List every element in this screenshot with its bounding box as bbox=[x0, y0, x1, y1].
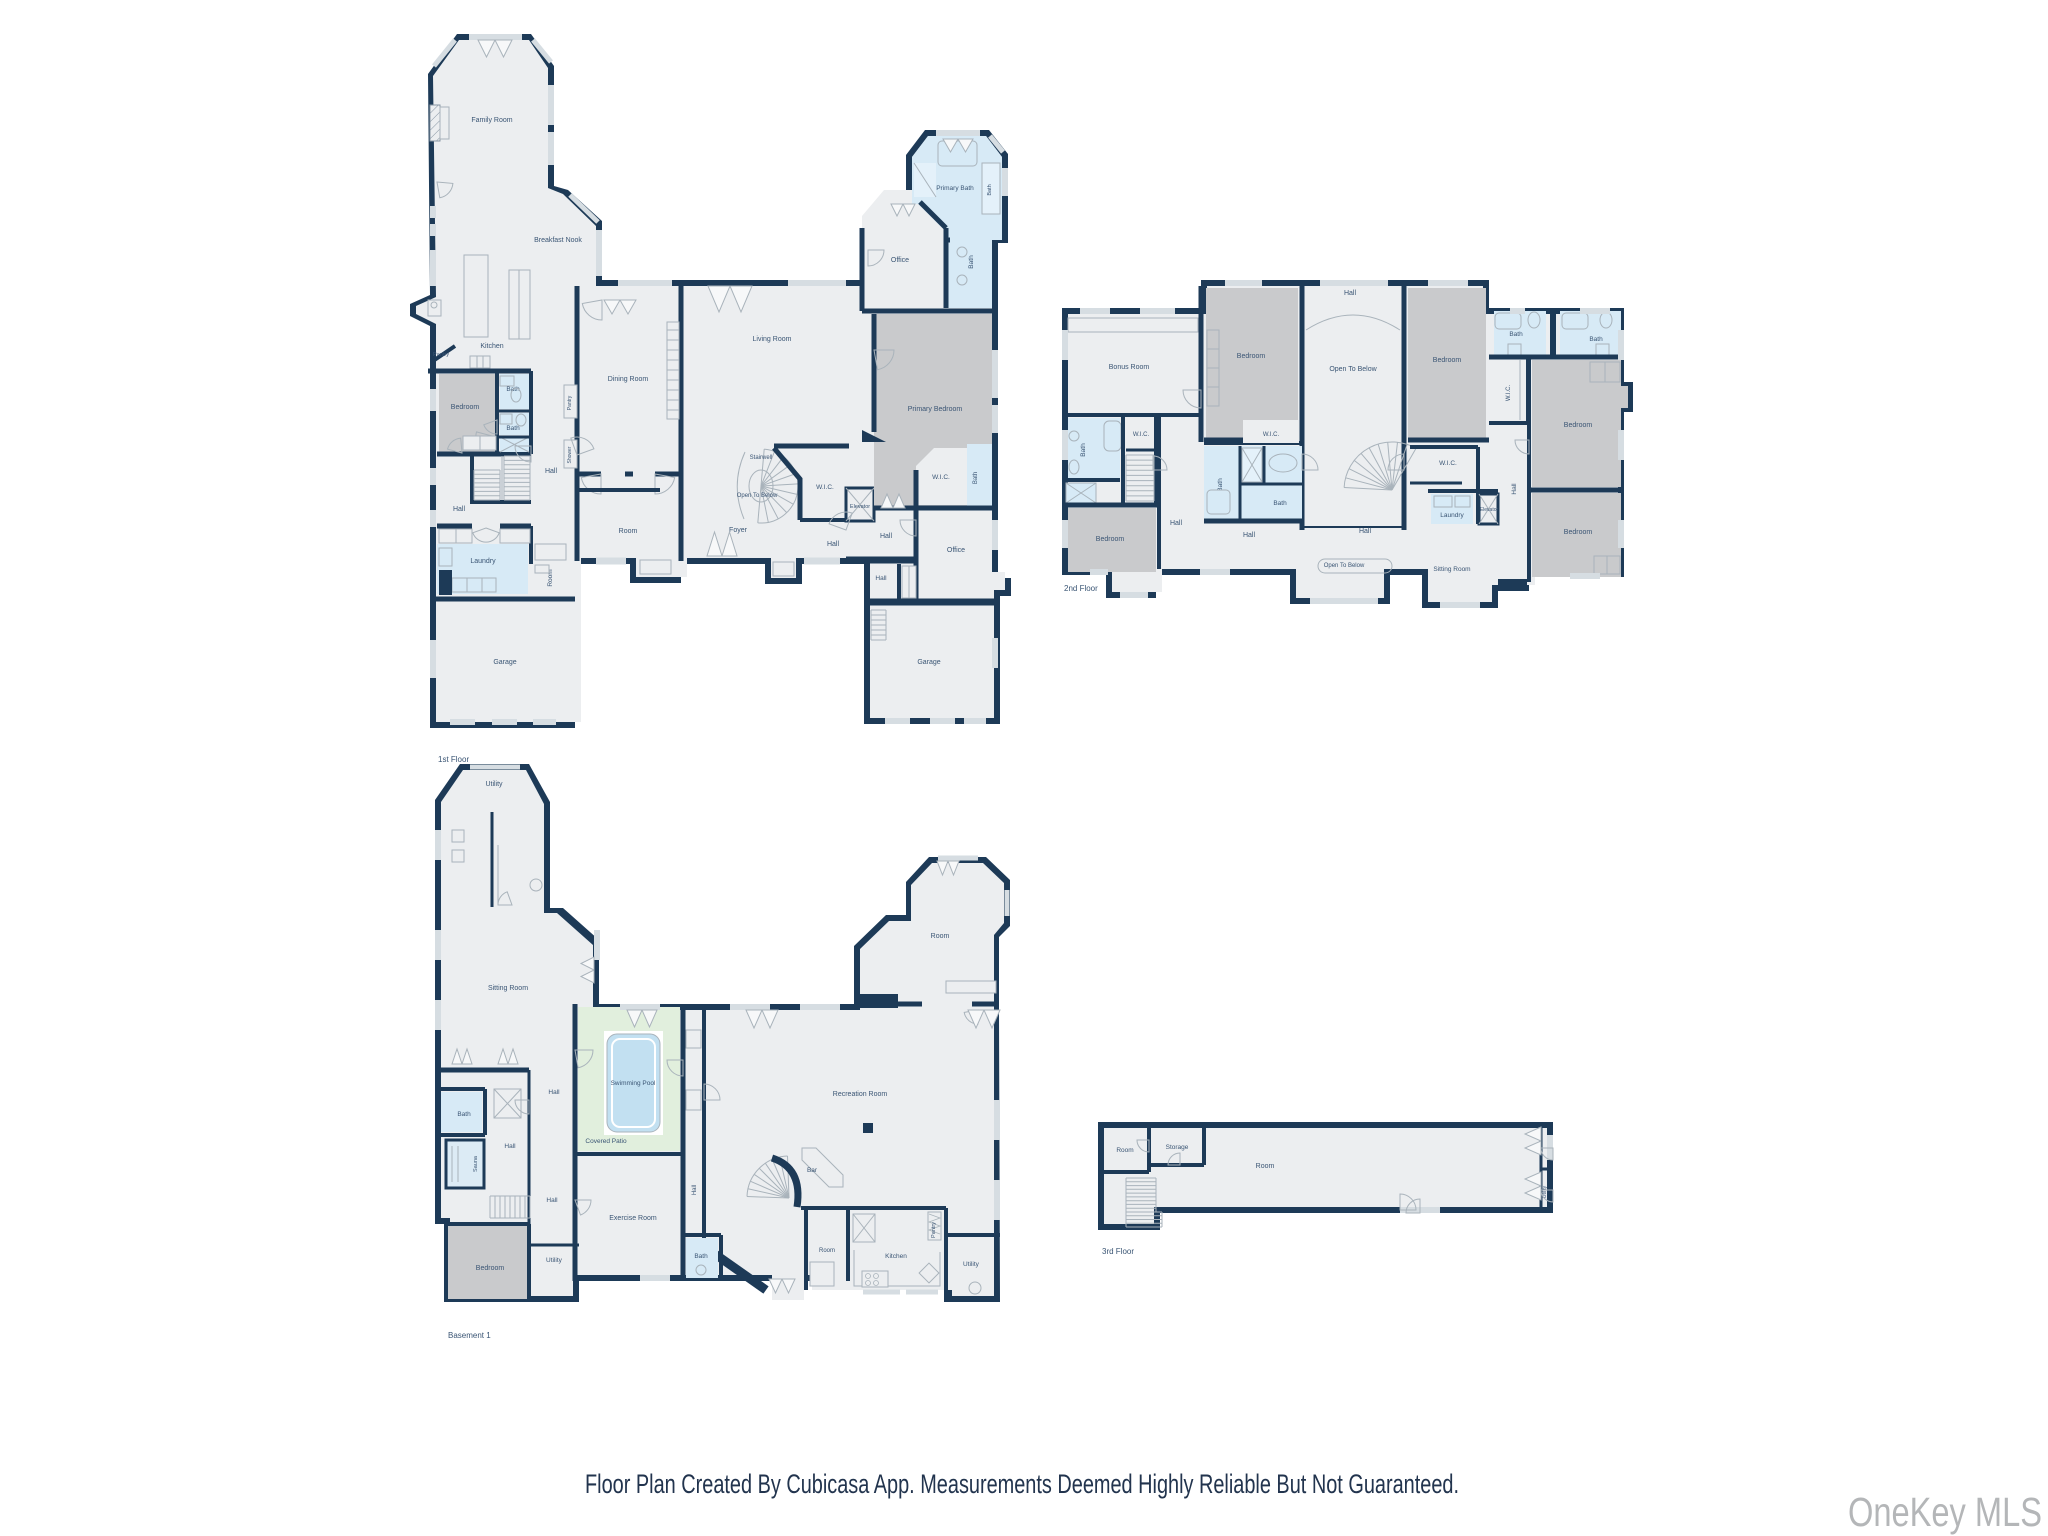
svg-text:W.I.C.: W.I.C. bbox=[1133, 432, 1150, 438]
svg-text:Bath: Bath bbox=[1589, 336, 1603, 343]
svg-text:Sitting Room: Sitting Room bbox=[488, 985, 528, 992]
svg-text:Bath: Bath bbox=[987, 184, 993, 195]
svg-text:W.I.C.: W.I.C. bbox=[1263, 432, 1280, 438]
svg-text:1st Floor: 1st Floor bbox=[438, 755, 469, 764]
svg-text:Bath: Bath bbox=[1509, 331, 1523, 338]
svg-text:Hall: Hall bbox=[875, 575, 887, 582]
svg-text:Hall: Hall bbox=[880, 533, 893, 540]
svg-text:Elevator: Elevator bbox=[1480, 507, 1499, 513]
svg-text:Kitchen: Kitchen bbox=[480, 343, 503, 350]
svg-text:Kitchen: Kitchen bbox=[885, 1253, 907, 1260]
svg-text:Utility: Utility bbox=[963, 1261, 980, 1268]
svg-text:Hall: Hall bbox=[1243, 532, 1256, 539]
svg-text:2nd Floor: 2nd Floor bbox=[1064, 584, 1098, 593]
svg-text:Office: Office bbox=[947, 547, 965, 554]
svg-text:Hall: Hall bbox=[1359, 528, 1372, 535]
svg-text:Bath: Bath bbox=[968, 255, 975, 269]
svg-text:Living Room: Living Room bbox=[753, 336, 792, 343]
svg-text:3rd Floor: 3rd Floor bbox=[1102, 1247, 1134, 1256]
svg-text:Open To Below: Open To Below bbox=[1324, 563, 1365, 569]
svg-text:Stairwell: Stairwell bbox=[750, 455, 773, 461]
svg-text:Hall: Hall bbox=[1344, 290, 1357, 297]
svg-text:Bath: Bath bbox=[1080, 443, 1087, 457]
svg-text:Hall: Hall bbox=[453, 506, 466, 513]
svg-text:Bedroom: Bedroom bbox=[1237, 353, 1266, 360]
svg-text:Elevator: Elevator bbox=[850, 504, 870, 510]
svg-text:Bedroom: Bedroom bbox=[1564, 529, 1593, 536]
svg-text:Bonus Room: Bonus Room bbox=[1109, 364, 1150, 371]
svg-text:Sitting Room: Sitting Room bbox=[1433, 566, 1470, 573]
svg-text:Floor Plan Created By Cubicasa: Floor Plan Created By Cubicasa App. Meas… bbox=[585, 1469, 1459, 1499]
svg-text:W.I.C.: W.I.C. bbox=[1506, 385, 1512, 402]
svg-text:Recreation Room: Recreation Room bbox=[833, 1091, 888, 1098]
svg-text:Swimming Pool: Swimming Pool bbox=[611, 1080, 656, 1087]
svg-text:Bedroom: Bedroom bbox=[1564, 422, 1593, 429]
svg-text:Sauna: Sauna bbox=[473, 1155, 479, 1172]
svg-text:Exercise Room: Exercise Room bbox=[609, 1215, 657, 1222]
svg-text:Room: Room bbox=[931, 933, 950, 940]
svg-text:Shower: Shower bbox=[567, 446, 573, 463]
svg-text:Pantry: Pantry bbox=[433, 352, 449, 358]
svg-text:Family Room: Family Room bbox=[471, 117, 512, 124]
svg-text:Hall: Hall bbox=[546, 1197, 558, 1204]
svg-text:Bedroom: Bedroom bbox=[1433, 357, 1462, 364]
svg-text:Breakfast Nook: Breakfast Nook bbox=[534, 237, 582, 244]
svg-text:Hall: Hall bbox=[504, 1143, 516, 1150]
svg-text:W.I.C.: W.I.C. bbox=[1439, 460, 1457, 467]
svg-text:Room: Room bbox=[1256, 1163, 1275, 1170]
svg-text:Bath: Bath bbox=[506, 425, 520, 432]
svg-text:Hall: Hall bbox=[692, 1185, 698, 1195]
svg-text:OneKey MLS: OneKey MLS bbox=[1848, 1489, 2042, 1535]
svg-text:Room: Room bbox=[819, 1248, 835, 1254]
svg-text:Office: Office bbox=[891, 257, 909, 264]
svg-text:Pantry: Pantry bbox=[567, 395, 573, 410]
svg-text:Hall: Hall bbox=[1170, 520, 1183, 527]
svg-text:Bath: Bath bbox=[694, 1253, 708, 1260]
svg-text:Pantry: Pantry bbox=[931, 1222, 937, 1238]
svg-text:Bedroom: Bedroom bbox=[1096, 536, 1125, 543]
svg-text:Bath: Bath bbox=[1273, 500, 1287, 507]
svg-text:Utility: Utility bbox=[485, 781, 503, 788]
svg-text:Room: Room bbox=[619, 528, 638, 535]
svg-text:Foyer: Foyer bbox=[729, 527, 748, 534]
svg-text:Hall: Hall bbox=[1511, 483, 1518, 495]
svg-text:Laundry: Laundry bbox=[1440, 512, 1464, 519]
svg-text:Covered Patio: Covered Patio bbox=[585, 1138, 627, 1145]
svg-text:Room: Room bbox=[1116, 1147, 1133, 1154]
svg-text:Utility: Utility bbox=[546, 1257, 563, 1264]
svg-text:Primary Bedroom: Primary Bedroom bbox=[908, 406, 963, 413]
svg-text:Hall: Hall bbox=[545, 468, 558, 475]
svg-text:Dining Room: Dining Room bbox=[608, 376, 649, 383]
svg-text:Basement 1: Basement 1 bbox=[448, 1331, 491, 1340]
svg-text:W.I.C.: W.I.C. bbox=[932, 474, 950, 481]
svg-text:Laundry: Laundry bbox=[470, 558, 496, 565]
svg-text:Garage: Garage bbox=[493, 659, 516, 666]
svg-text:Storage: Storage bbox=[1166, 1144, 1189, 1151]
svg-text:Bath: Bath bbox=[973, 472, 979, 484]
svg-text:Open To Below: Open To Below bbox=[1329, 366, 1377, 373]
svg-text:Hall: Hall bbox=[827, 541, 840, 548]
svg-text:W.I.C.: W.I.C. bbox=[816, 484, 834, 491]
svg-text:Bar: Bar bbox=[807, 1167, 818, 1174]
svg-text:Bedroom: Bedroom bbox=[451, 404, 480, 411]
svg-text:Bath: Bath bbox=[457, 1111, 471, 1118]
svg-text:Primary Bath: Primary Bath bbox=[936, 185, 974, 192]
svg-text:Garage: Garage bbox=[917, 659, 940, 666]
svg-text:Open To Below: Open To Below bbox=[737, 493, 778, 499]
svg-text:Hall: Hall bbox=[548, 1089, 560, 1096]
svg-text:Bedroom: Bedroom bbox=[476, 1265, 505, 1272]
